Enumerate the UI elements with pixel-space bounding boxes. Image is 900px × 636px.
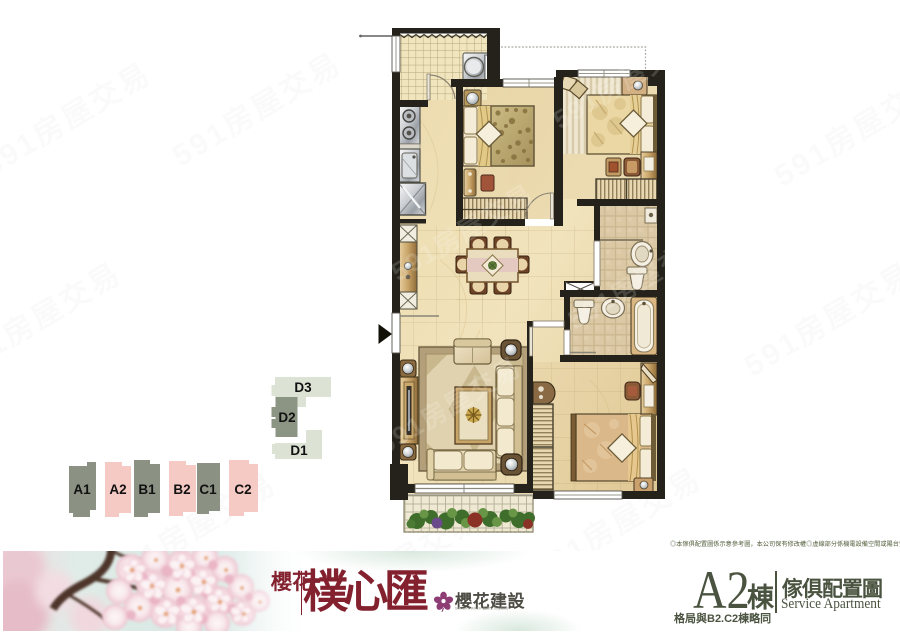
svg-text:D1: D1 <box>290 443 308 458</box>
svg-text:B2: B2 <box>173 482 190 497</box>
svg-text:C2: C2 <box>234 482 251 497</box>
svg-text:D2: D2 <box>278 410 295 425</box>
svg-text:B1: B1 <box>138 482 156 497</box>
svg-text:A1: A1 <box>73 482 91 497</box>
svg-text:D3: D3 <box>294 380 312 395</box>
svg-text:A2: A2 <box>109 482 126 497</box>
svg-text:C1: C1 <box>199 482 217 497</box>
